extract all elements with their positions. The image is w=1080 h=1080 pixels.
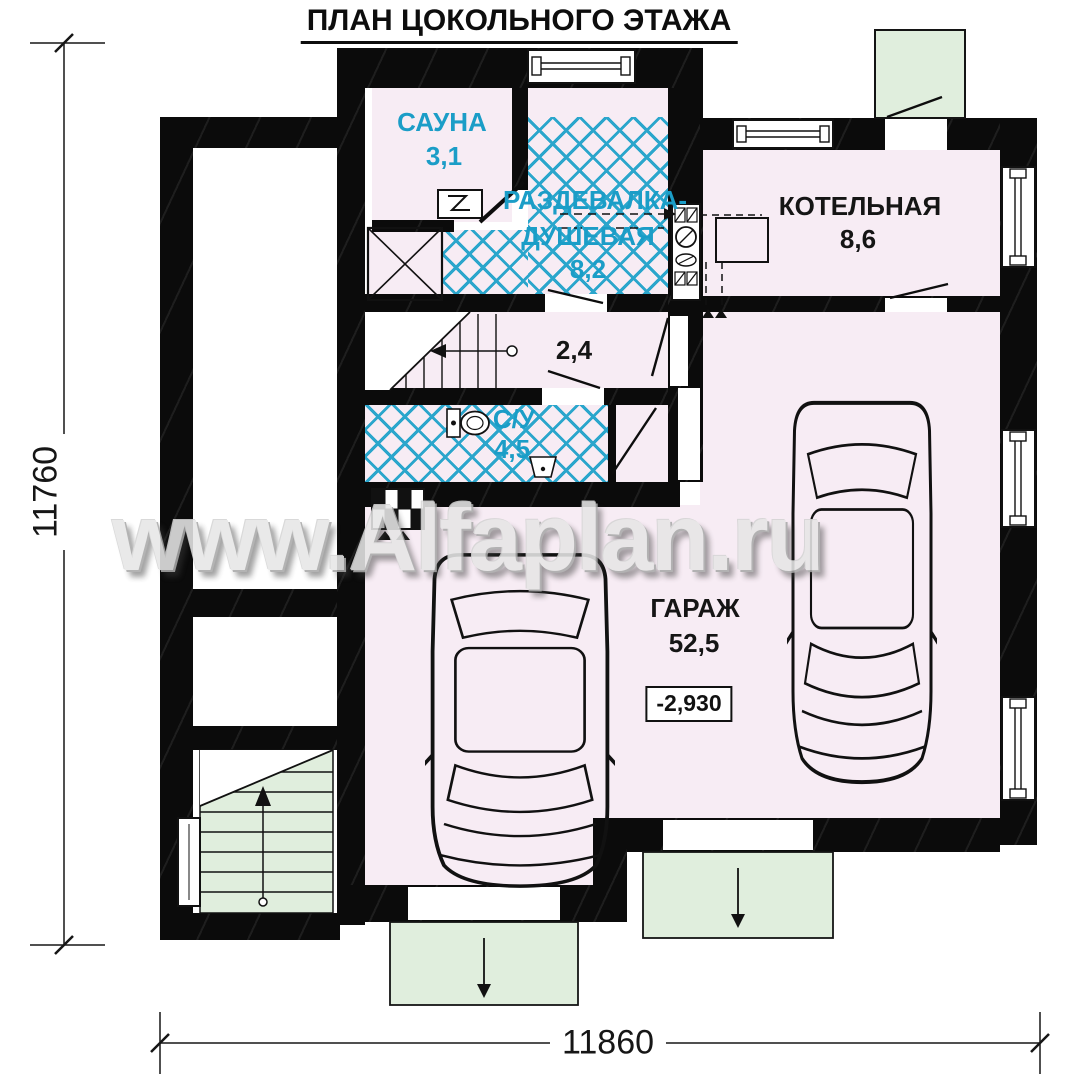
vent-shaft-x: [368, 228, 442, 300]
elevation-mark: -2,930: [645, 686, 732, 722]
dimension-bottom-value: 11860: [550, 1024, 666, 1063]
sauna-stove: [438, 190, 482, 218]
plan-title: ПЛАН ЦОКОЛЬНОГО ЭТАЖА: [301, 4, 738, 44]
label-sauna: САУНА: [397, 109, 487, 135]
watermark: www.Alfaplan.ru: [112, 484, 823, 593]
label-bathroom: С/У: [493, 406, 535, 432]
label-sauna-area: 3,1: [426, 143, 462, 169]
label-garage: ГАРАЖ: [650, 595, 739, 621]
label-boiler-area: 8,6: [840, 226, 876, 252]
hall-staircase: [365, 312, 517, 390]
label-bathroom-area: 4,5: [494, 436, 530, 462]
exterior-staircase: [200, 750, 333, 913]
door-swings: [480, 97, 948, 474]
dimension-left-value: 11760: [27, 434, 66, 550]
label-hallway-area: 2,4: [556, 337, 592, 363]
vent-duct-symbols: [672, 204, 700, 300]
label-dressing-line1: РАЗДЕВАЛКА-: [503, 187, 687, 213]
car-left: [423, 555, 617, 886]
label-dressing-line2: ДУШЕВАЯ: [521, 223, 654, 249]
floor-plan-canvas: ПЛАН ЦОКОЛЬНОГО ЭТАЖА САУНА 3,1 РАЗДЕВАЛ…: [0, 0, 1080, 1080]
label-garage-area: 52,5: [669, 630, 720, 656]
toilet-icon: [447, 409, 489, 437]
sink-icon: [530, 457, 556, 477]
label-dressing-area: 8,2: [570, 256, 606, 282]
label-boiler-room: КОТЕЛЬНАЯ: [779, 193, 942, 219]
